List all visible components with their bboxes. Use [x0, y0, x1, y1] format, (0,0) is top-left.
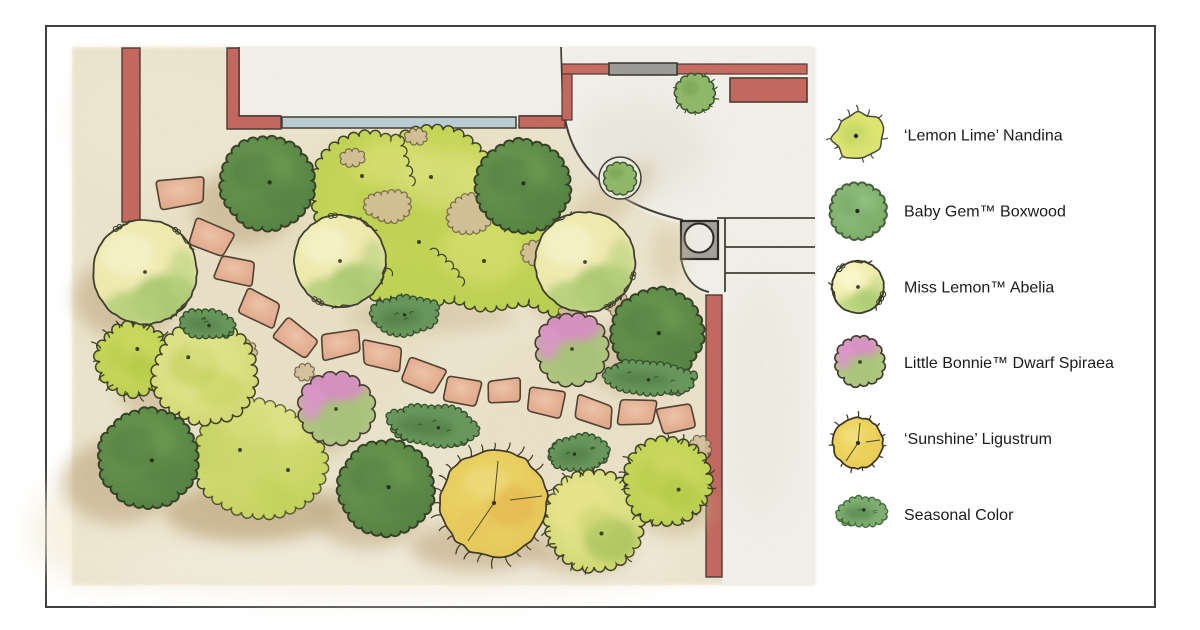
svg-text:Seasonal Color: Seasonal Color	[904, 507, 1014, 524]
svg-text:Miss Lemon™ Abelia: Miss Lemon™ Abelia	[904, 280, 1054, 297]
svg-text:‘Sunshine’ Ligustrum: ‘Sunshine’ Ligustrum	[904, 431, 1052, 448]
svg-text:‘Lemon Lime’ Nandina: ‘Lemon Lime’ Nandina	[904, 128, 1063, 145]
svg-text:Baby Gem™ Boxwood: Baby Gem™ Boxwood	[904, 204, 1066, 221]
svg-text:Little Bonnie™ Dwarf Spiraea: Little Bonnie™ Dwarf Spiraea	[904, 355, 1114, 372]
